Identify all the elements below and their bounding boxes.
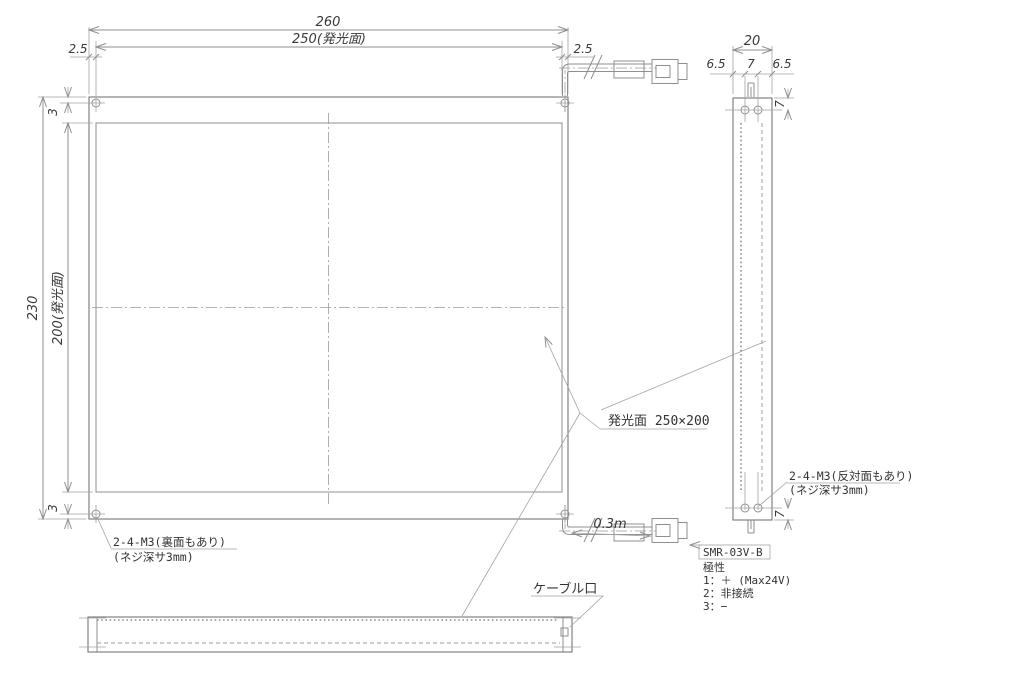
cable-port-label: ケーブル口 bbox=[533, 581, 597, 597]
dim-hole-offset-top: 3 bbox=[46, 108, 60, 116]
front-screw-callout: 2-4-M3(裏面もあり) (ネジ深サ3mm) bbox=[97, 517, 237, 564]
side-screw-callout: 2-4-M3(反対面もあり) (ネジ深サ3mm) bbox=[759, 469, 913, 506]
connector-top bbox=[652, 60, 687, 84]
dim-side-hole-top: 7 bbox=[773, 100, 787, 108]
front-dimensions: 260 250(発光面) 2.5 2.5 230 200(発光面) 3 3 bbox=[26, 15, 594, 529]
polarity-pin1: 1：＋ (Max24V) bbox=[703, 574, 791, 587]
mounting-holes-front bbox=[92, 94, 574, 523]
panel-centerlines bbox=[92, 113, 566, 505]
dim-side-width: 20 bbox=[744, 34, 761, 49]
dim-edge-right: 2.5 bbox=[573, 42, 592, 56]
cable-port bbox=[561, 628, 568, 636]
dim-side-center: 7 bbox=[747, 57, 755, 71]
side-screw-line1: 2-4-M3(反対面もあり) bbox=[789, 469, 913, 483]
dim-edge-left: 2.5 bbox=[68, 42, 87, 56]
dim-cable-length: 0.3m bbox=[593, 517, 626, 532]
dim-total-width: 260 bbox=[316, 15, 341, 30]
side-dimensions: 20 6.5 7 6.5 7 7 bbox=[706, 34, 794, 529]
cable-stub-bottom bbox=[748, 520, 754, 533]
dim-emitting-height: 200(発光面) bbox=[51, 271, 66, 345]
connector-bottom bbox=[652, 519, 687, 543]
connector-note: SMR-03V-B 極性 1：＋ (Max24V) 2：非接続 3：− bbox=[690, 545, 791, 613]
side-view bbox=[725, 76, 782, 533]
dim-hole-offset-bottom: 3 bbox=[46, 504, 60, 512]
side-outline bbox=[733, 98, 772, 520]
cable-bottom: 0.3m bbox=[559, 505, 687, 543]
polarity-pin2: 2：非接続 bbox=[703, 586, 754, 600]
dim-emitting-width: 250(発光面) bbox=[292, 32, 366, 47]
extension-lines bbox=[38, 27, 568, 519]
cad-drawing-page: 260 250(発光面) 2.5 2.5 230 200(発光面) 3 3 bbox=[0, 0, 1024, 683]
polarity-title: 極性 bbox=[703, 560, 725, 574]
front-screw-line1: 2-4-M3(裏面もあり) bbox=[113, 535, 226, 549]
dim-total-height: 230 bbox=[26, 296, 41, 321]
dim-side-hole-bottom: 7 bbox=[773, 510, 787, 518]
bottom-view bbox=[79, 617, 581, 652]
dim-side-left: 6.5 bbox=[706, 57, 725, 71]
connector-model: SMR-03V-B bbox=[703, 546, 763, 559]
front-view bbox=[89, 94, 574, 523]
emit-area-label: 発光面 250×200 bbox=[608, 414, 710, 429]
led-panel-drawing: 260 250(発光面) 2.5 2.5 230 200(発光面) 3 3 bbox=[0, 0, 1024, 683]
polarity-pin3: 3：− bbox=[703, 600, 728, 613]
annotations: 発光面 250×200 2-4-M3(裏面もあり) (ネジ深サ3mm) 2-4-… bbox=[97, 337, 913, 627]
cable-port-callout: ケーブル口 bbox=[531, 581, 603, 627]
cable-top bbox=[559, 55, 687, 112]
dim-side-right: 6.5 bbox=[772, 57, 791, 71]
side-screw-line2: (ネジ深サ3mm) bbox=[789, 483, 870, 497]
front-screw-line2: (ネジ深サ3mm) bbox=[113, 550, 194, 564]
bottom-outline bbox=[88, 617, 572, 652]
cable-break-symbol bbox=[584, 55, 602, 79]
cable-stub-top bbox=[748, 83, 754, 97]
